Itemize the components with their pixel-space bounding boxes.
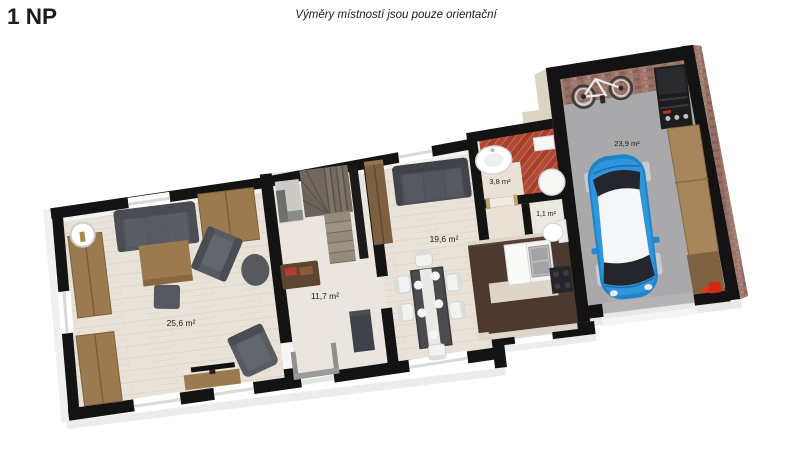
svg-text:3,8 m²: 3,8 m² — [489, 177, 511, 186]
svg-text:23,9 m²: 23,9 m² — [614, 139, 640, 148]
svg-text:1 NP: 1 NP — [7, 4, 57, 29]
svg-text:Výměry místností jsou pouze or: Výměry místností jsou pouze orientační — [295, 9, 498, 21]
svg-text:1,1 m²: 1,1 m² — [536, 211, 557, 218]
svg-text:11,7 m²: 11,7 m² — [311, 291, 339, 301]
svg-text:19,6 m²: 19,6 m² — [430, 234, 459, 244]
svg-text:25,6 m²: 25,6 m² — [167, 318, 196, 328]
